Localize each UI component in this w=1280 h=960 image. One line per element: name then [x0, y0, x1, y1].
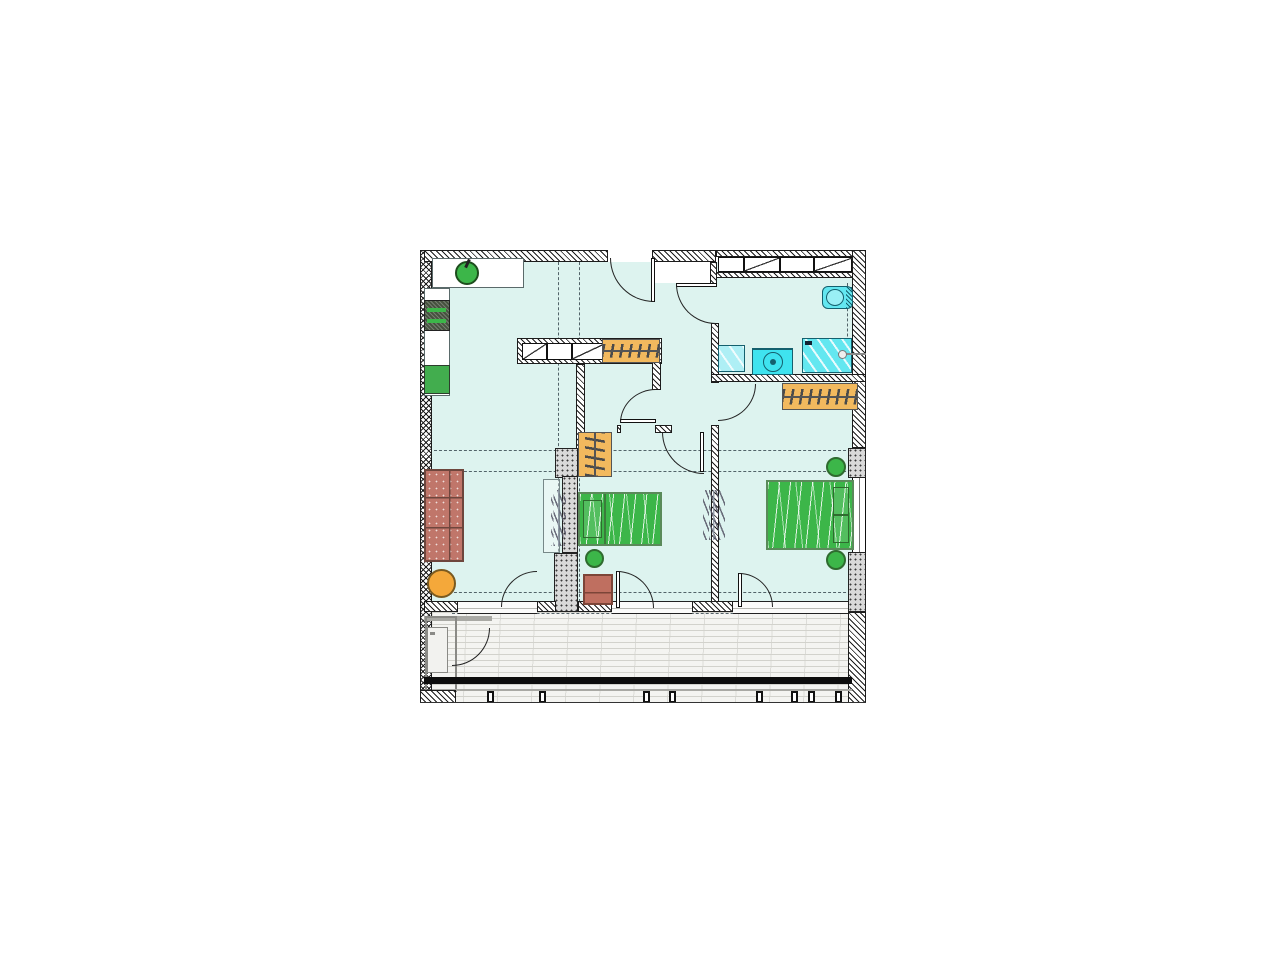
stool-middle-room — [585, 549, 604, 568]
stool-right-top — [826, 457, 846, 477]
side-table — [583, 574, 613, 605]
wardrobe-hall — [578, 432, 612, 477]
axis-horizontal-2 — [424, 471, 866, 472]
column-mid-lower — [554, 553, 578, 612]
apartment-floor — [432, 262, 852, 602]
wall-top-bathroom-outer — [716, 250, 866, 257]
wall-right-upper — [852, 250, 866, 448]
wall-bedroom-middle-north-a — [617, 425, 621, 433]
wall-top-bathroom-inner — [716, 272, 866, 278]
coat-hooks-living — [551, 490, 566, 546]
floor-plan-canvas — [0, 0, 1280, 960]
balcony-railing — [424, 677, 852, 684]
window-divider — [779, 258, 781, 271]
window-opening-line — [744, 258, 779, 271]
round-table — [427, 569, 456, 598]
window-opening-line — [814, 258, 852, 271]
partition-window — [522, 343, 604, 360]
wall-hall-stub — [652, 362, 661, 390]
sofa — [424, 469, 464, 562]
kitchen-base-cabinet — [424, 365, 450, 394]
bedroom-right-window — [852, 477, 866, 553]
bed-double — [766, 480, 854, 550]
column-right-lower — [848, 552, 866, 612]
column-right-upper — [848, 448, 866, 478]
shower-grab-bar — [838, 350, 866, 359]
wardrobe-bedroom-right — [782, 383, 858, 410]
bathroom-sink — [718, 345, 745, 372]
column-mid-upper — [555, 448, 578, 478]
wardrobe-partition — [602, 339, 660, 363]
wall-south-d — [692, 601, 733, 612]
washing-machine — [752, 348, 793, 375]
stool-right-bottom — [826, 550, 846, 570]
wall-south-b — [537, 601, 556, 612]
bathroom-window — [718, 257, 852, 272]
balcony-edge-line — [432, 689, 852, 691]
axis-horizontal-1 — [424, 450, 866, 451]
kitchen-stove — [424, 300, 450, 331]
window-divider — [546, 344, 548, 359]
kitchen-sink — [455, 261, 479, 285]
window-opening-line — [572, 344, 604, 359]
bed-single — [578, 492, 662, 546]
wall-top-notch — [652, 250, 716, 262]
window-opening-line — [523, 344, 546, 359]
ground-line — [420, 702, 866, 703]
wall-bathroom-south — [711, 374, 866, 382]
wall-south-a — [424, 601, 458, 612]
toilet — [822, 286, 853, 309]
radiator-between-bedrooms — [703, 490, 725, 540]
notch-void — [652, 262, 716, 283]
storage-cabinet — [427, 627, 448, 673]
